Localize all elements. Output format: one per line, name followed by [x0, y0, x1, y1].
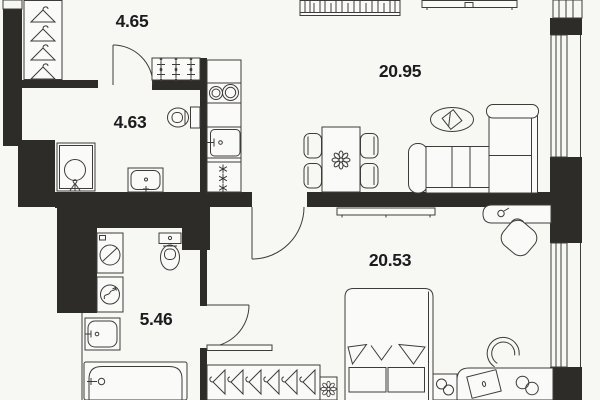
room-label-living-room: 20.95 — [379, 61, 422, 81]
wall-bath-door-lower — [200, 348, 207, 400]
magazine-icon — [442, 110, 462, 130]
floor-plan-svg: 4.65 4.63 20.95 20.53 5.46 — [0, 0, 600, 400]
dining-set — [304, 127, 378, 192]
room-label-bathroom-large: 5.46 — [140, 309, 173, 329]
door-bathroom-large — [207, 305, 249, 347]
towel-dryer — [97, 277, 123, 312]
bathtub — [84, 362, 187, 400]
wall-cap-top-right — [553, 0, 582, 18]
tv-console — [422, 1, 517, 11]
hallway-wardrobe — [24, 1, 62, 80]
rug — [431, 108, 474, 132]
window-living-room — [551, 35, 581, 157]
double-bed — [345, 289, 433, 400]
wall-left-upper — [3, 9, 22, 146]
wall-left-step — [18, 140, 55, 207]
dresser — [337, 208, 435, 218]
door-bedroom — [252, 207, 304, 259]
wall-band-top — [55, 192, 210, 208]
shoe-cabinet-hob — [152, 58, 200, 81]
hall-wardrobe — [207, 365, 320, 400]
washbasin-large-bath — [85, 318, 120, 350]
wall-right-pier-top — [550, 18, 582, 35]
dining-chair — [304, 134, 322, 159]
work-desk — [457, 368, 553, 400]
washbasin-small-bath — [128, 168, 163, 192]
wall-column-bath — [57, 207, 97, 313]
shower-cabin — [57, 143, 95, 192]
wall-hall-bath-right — [152, 80, 207, 90]
dining-chair — [304, 164, 322, 189]
wall-band-bottom — [95, 208, 210, 228]
dining-chair — [361, 164, 379, 189]
nightstand — [433, 374, 457, 400]
room-label-bathroom-small: 4.63 — [114, 112, 147, 132]
wall-kitchen-vertical — [200, 58, 207, 194]
floor-plan: 4.65 4.63 20.95 20.53 5.46 — [0, 0, 600, 400]
washing-machine — [97, 233, 123, 273]
wall-shaft — [182, 228, 210, 250]
office-chair-bottom — [482, 332, 521, 368]
window-bedroom — [551, 243, 581, 367]
wall-bath-door-upper — [200, 250, 207, 306]
room-label-bedroom: 20.53 — [369, 250, 412, 270]
wall-hall-bath-left — [22, 80, 98, 88]
wall-mid-left — [207, 192, 252, 207]
hall-shelf — [207, 345, 272, 351]
plant-box — [320, 377, 337, 400]
toilet-small-bath — [168, 107, 201, 128]
wall-cap-top-left — [3, 0, 22, 9]
wall-right-pier-bottom — [550, 367, 582, 400]
bookshelf — [300, 1, 400, 16]
door-hallway-bathroom — [113, 45, 153, 85]
wall-right-pier-mid — [550, 157, 582, 243]
dining-chair — [361, 134, 379, 159]
toilet-large-bath — [159, 233, 181, 270]
dining-table — [322, 127, 360, 192]
room-label-hallway: 4.65 — [116, 11, 149, 31]
kitchen-counter — [207, 60, 241, 193]
